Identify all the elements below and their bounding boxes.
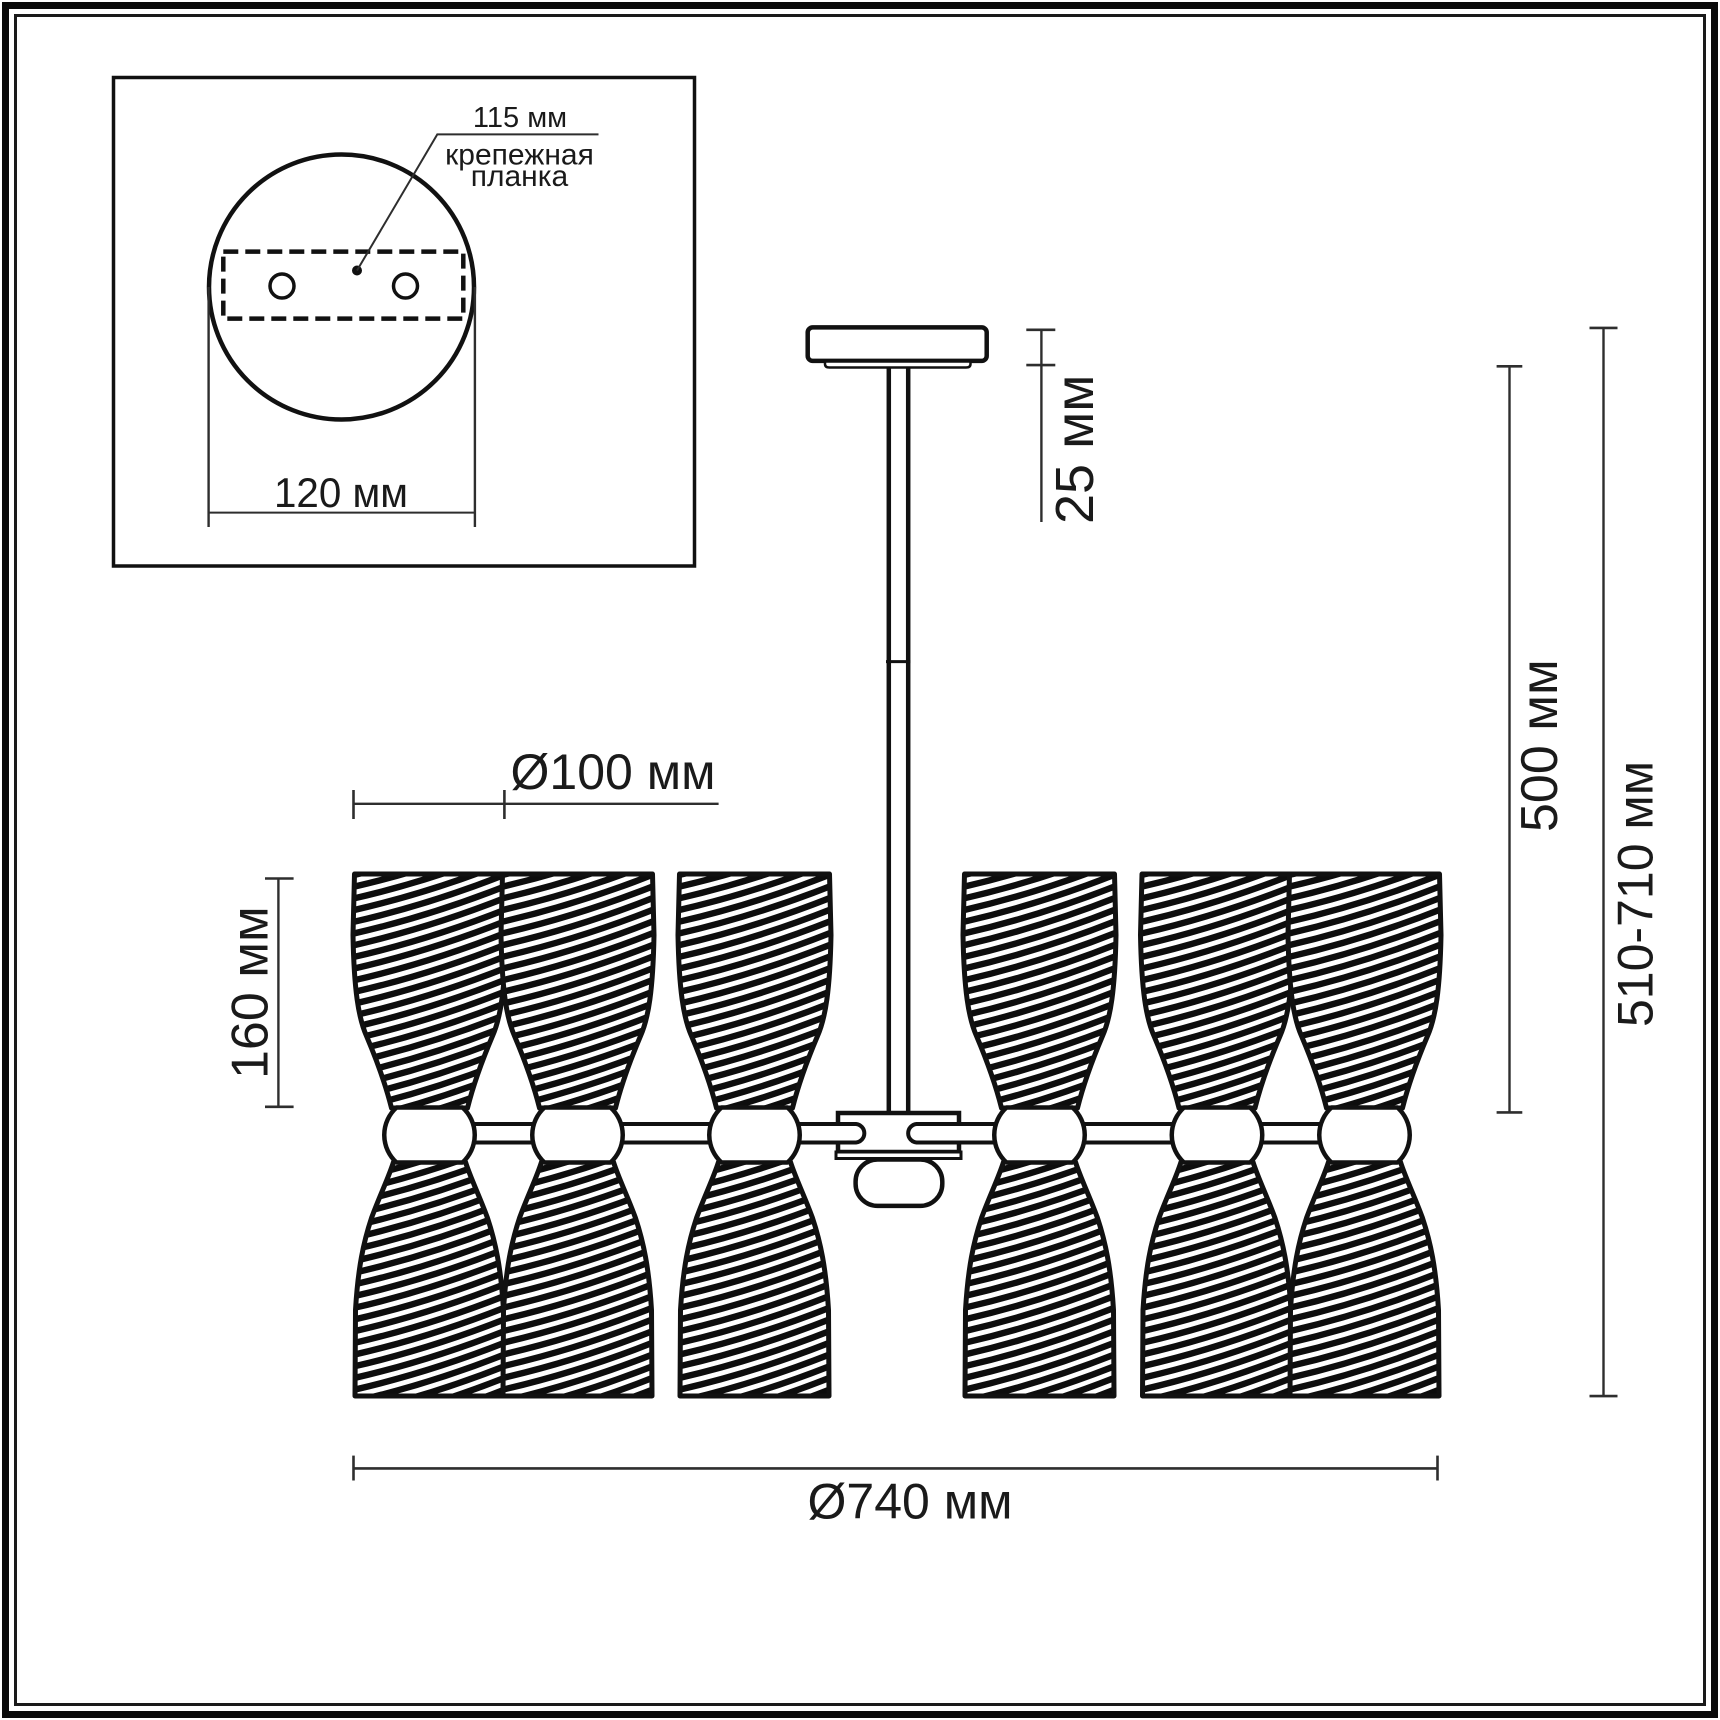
svg-text:Ø100 мм: Ø100 мм: [511, 744, 716, 800]
svg-text:планка: планка: [471, 160, 569, 193]
svg-text:510-710 мм: 510-710 мм: [1608, 761, 1664, 1027]
svg-text:115 мм: 115 мм: [473, 102, 567, 134]
svg-text:500 мм: 500 мм: [1511, 659, 1569, 832]
svg-text:160 мм: 160 мм: [222, 906, 280, 1079]
svg-text:120 мм: 120 мм: [274, 469, 408, 516]
svg-text:25 мм: 25 мм: [1045, 375, 1105, 524]
svg-text:Ø740 мм: Ø740 мм: [808, 1474, 1013, 1530]
